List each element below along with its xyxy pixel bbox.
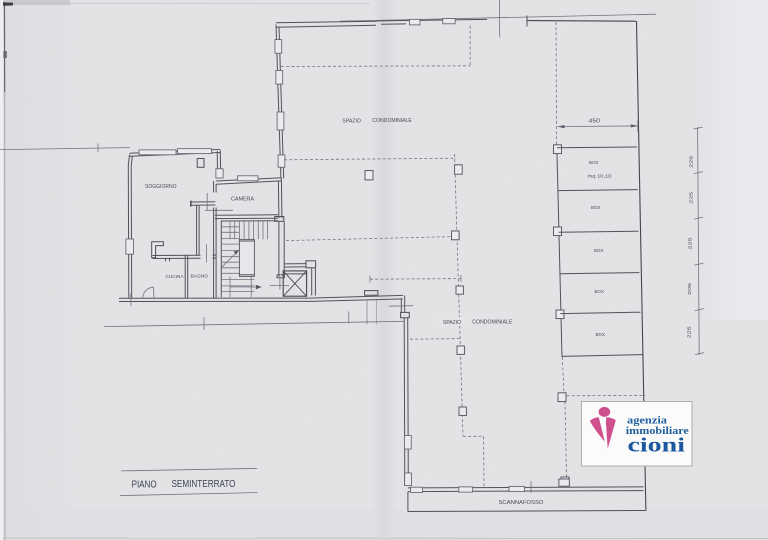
svg-text:BOX: BOX [595,289,605,295]
svg-text:CONDOMINIALE: CONDOMINIALE [472,320,513,326]
svg-text:225: 225 [688,191,693,204]
svg-text:226: 226 [688,155,693,168]
svg-text:CUCINA: CUCINA [166,274,185,279]
svg-text:CAMERA: CAMERA [231,197,255,203]
svg-text:205: 205 [687,282,692,295]
svg-text:SEMINTERRATO: SEMINTERRATO [172,479,236,490]
svg-text:225: 225 [686,326,691,339]
svg-text:mq 10,10: mq 10,10 [588,174,613,179]
svg-text:SPAZIO: SPAZIO [443,320,461,326]
svg-text:225: 225 [688,237,693,250]
svg-text:SOGGIORNO: SOGGIORNO [145,184,177,190]
svg-text:450: 450 [589,119,601,125]
svg-text:SCANNAFOSSO: SCANNAFOSSO [499,500,544,506]
svg-text:BOX: BOX [591,205,601,211]
svg-text:SPAZIO: SPAZIO [342,119,361,125]
svg-text:BOX: BOX [594,248,604,254]
svg-text:CONDOMINIALE: CONDOMINIALE [372,118,412,124]
svg-text:BOX: BOX [589,160,599,166]
svg-text:BAGNO: BAGNO [191,274,209,279]
svg-text:BOX: BOX [596,332,606,338]
svg-text:cioni: cioni [628,435,686,457]
svg-text:PIANO: PIANO [132,479,157,490]
